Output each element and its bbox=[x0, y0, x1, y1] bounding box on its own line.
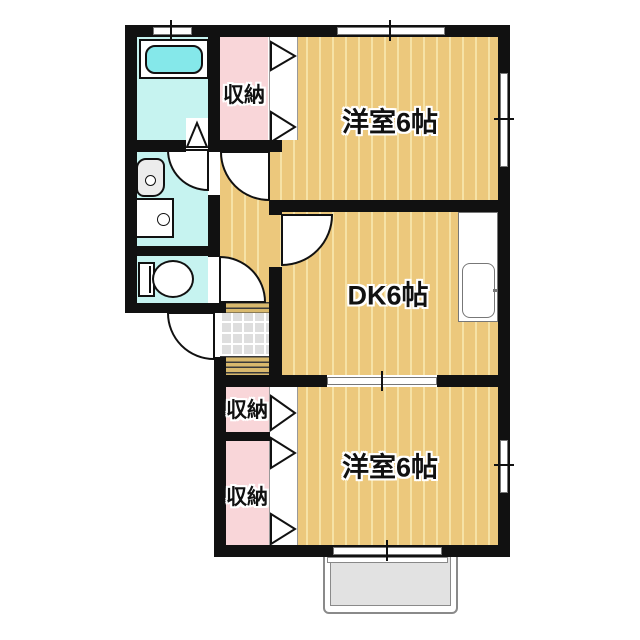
western-room-top-label: 洋室6帖 bbox=[342, 101, 438, 140]
window-tick bbox=[389, 20, 391, 41]
dk-label: DK6帖 bbox=[347, 274, 428, 313]
wall-dk-south-right bbox=[437, 375, 510, 387]
entrance-door-swing bbox=[168, 313, 214, 359]
closet-middle-label: 収納 bbox=[226, 394, 268, 424]
closet-bottom-label: 収納 bbox=[226, 481, 268, 511]
wall-closet-top-south bbox=[208, 140, 282, 152]
window-tick bbox=[386, 540, 388, 561]
wall-left-lower bbox=[214, 357, 226, 557]
closet-top-label: 収納 bbox=[223, 79, 265, 109]
wall-washroom-toilet bbox=[125, 246, 220, 256]
door-symbols-overlay bbox=[0, 0, 640, 640]
closet-top-folding-door-icon bbox=[271, 42, 295, 70]
floor-plan: 収納 洋室6帖 DK6帖 収納 収納 洋室6帖 bbox=[0, 0, 640, 640]
wall-room-top-south bbox=[269, 200, 510, 212]
window-bathroom-top bbox=[153, 27, 192, 35]
wall-toilet-south bbox=[125, 303, 226, 313]
wall-hall-east-lower bbox=[269, 267, 282, 378]
western-room-top-door-swing bbox=[221, 152, 269, 200]
wall-bath-east bbox=[208, 37, 220, 150]
wall-closet-divider bbox=[214, 432, 270, 441]
sliding-door-tick bbox=[381, 371, 383, 391]
window-tick bbox=[170, 20, 172, 41]
window-room-top bbox=[337, 27, 445, 35]
window-tick bbox=[494, 118, 514, 120]
wall-bath-washroom bbox=[125, 140, 186, 152]
wall-dk-south-left bbox=[214, 375, 327, 387]
bathroom-folding-door-icon bbox=[187, 123, 207, 147]
closet-bottom-folding-door-icon bbox=[271, 438, 295, 468]
western-room-bottom-label: 洋室6帖 bbox=[342, 446, 438, 485]
closet-top-folding-door-icon bbox=[271, 112, 295, 142]
window-room-bottom-east bbox=[500, 440, 508, 493]
window-tick bbox=[494, 464, 514, 466]
washroom-door-swing bbox=[168, 150, 208, 190]
toilet-door-swing bbox=[220, 257, 265, 302]
wall-left-upper bbox=[125, 25, 137, 313]
closet-bottom-folding-door-icon bbox=[271, 514, 295, 544]
closet-middle-folding-door-icon bbox=[271, 396, 295, 430]
window-room-top-east bbox=[500, 73, 508, 167]
dk-door-swing bbox=[282, 215, 332, 265]
